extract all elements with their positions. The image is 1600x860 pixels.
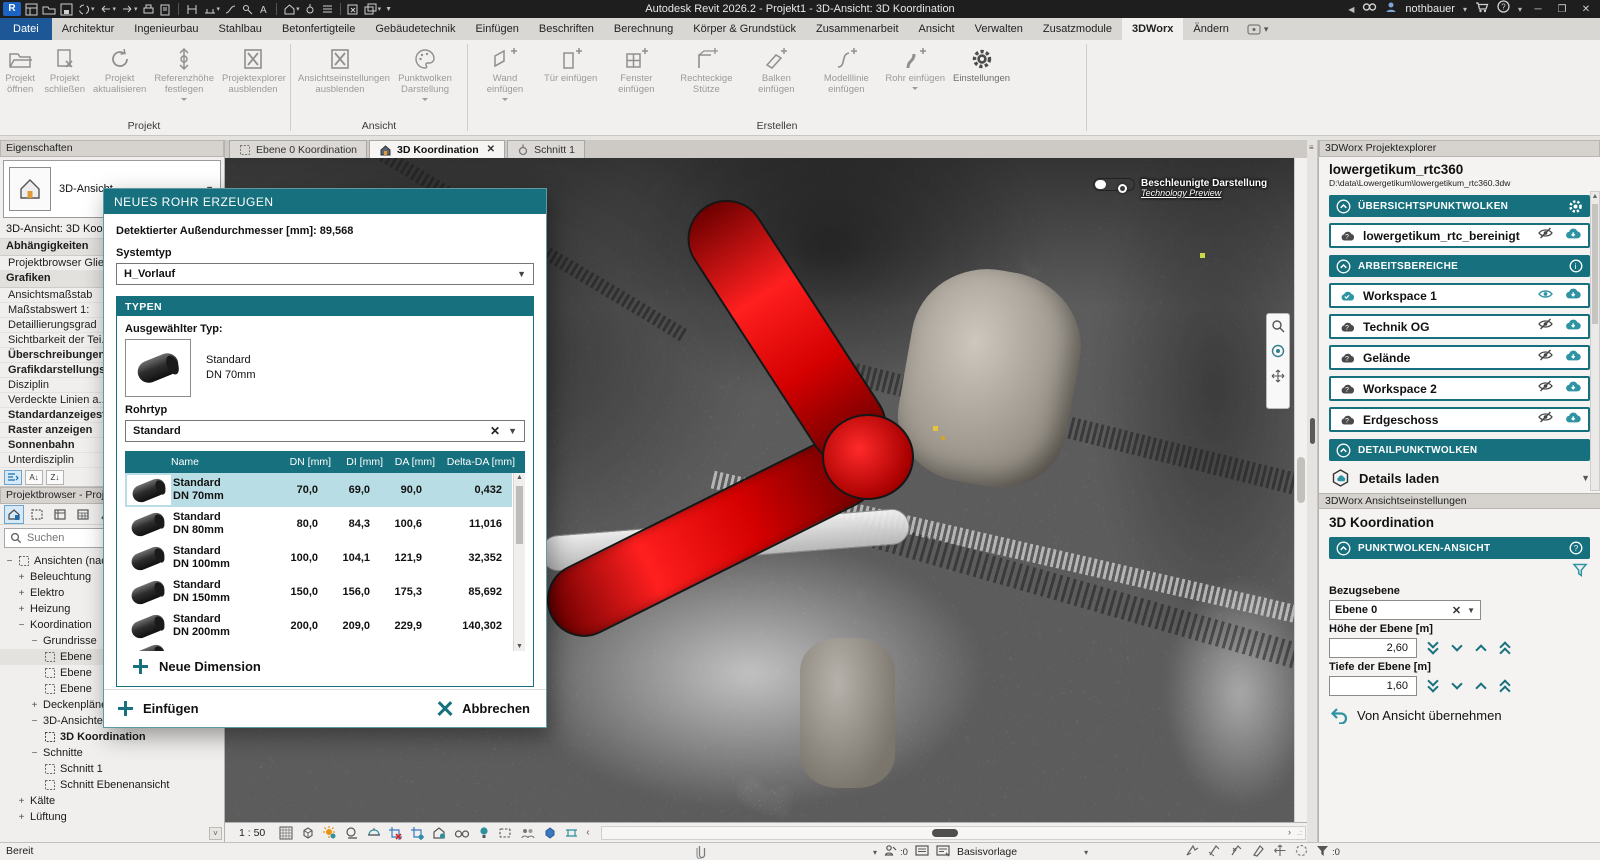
svg-text:?: ? xyxy=(1345,356,1349,363)
scrollbar-thumb[interactable] xyxy=(1297,457,1305,503)
rohrtyp-label: Rohrtyp xyxy=(125,404,525,416)
navigation-bar xyxy=(1266,313,1290,409)
scroll-right-icon[interactable]: › xyxy=(1288,827,1291,837)
punktwolken-darstellung-button[interactable]: Punktwolken Darstellung xyxy=(386,44,464,104)
view-settings-view-name: 3D Koordination xyxy=(1329,515,1590,530)
tab-stahlbau[interactable]: Stahlbau xyxy=(209,18,272,40)
marker-dot xyxy=(933,426,938,431)
render-icon[interactable] xyxy=(366,825,381,840)
clear-icon[interactable]: ✕ xyxy=(490,424,500,438)
section-view-icon xyxy=(517,144,529,156)
visibility-off-icon[interactable] xyxy=(1537,317,1554,336)
tiefe-label: Tiefe der Ebene [m] xyxy=(1329,661,1590,673)
undo-icon[interactable]: ▾ xyxy=(99,3,117,16)
cloud-status-icon: ? xyxy=(1338,320,1355,333)
ribbon: Projekt öffnen Projekt schließen Projekt… xyxy=(0,40,1600,136)
section-box-icon[interactable] xyxy=(432,825,447,840)
redo-icon[interactable]: ▾ xyxy=(120,3,138,16)
save-icon[interactable] xyxy=(60,3,73,16)
steering-wheel-icon[interactable] xyxy=(1271,344,1285,363)
workspace-item[interactable]: Workspace 1 xyxy=(1329,283,1590,308)
von-ansicht-uebernehmen-button[interactable]: Von Ansicht übernehmen xyxy=(1329,706,1590,724)
project-name: lowergetikum_rtc360 xyxy=(1329,162,1590,177)
print-icon[interactable] xyxy=(142,3,155,16)
gear-icon xyxy=(968,46,996,72)
table-header: Name DN [mm] DI [mm] DA [mm] Delta-DA [m… xyxy=(125,451,525,473)
tab-ingenieurbau[interactable]: Ingenieurbau xyxy=(124,18,208,40)
workspace-item[interactable]: ? Gelände xyxy=(1329,345,1590,370)
collapse-icon xyxy=(1336,541,1351,556)
open-icon[interactable] xyxy=(42,3,56,16)
pipe-plus-icon xyxy=(901,46,929,72)
accel-sublabel: Technology Preview xyxy=(1141,189,1267,199)
tree-item[interactable]: +Kälte xyxy=(0,793,224,809)
sync-icon[interactable]: ▾ xyxy=(77,3,95,16)
workspace-item[interactable]: ? Erdgeschoss xyxy=(1329,407,1590,432)
refresh-icon xyxy=(106,46,134,72)
design-option-value[interactable]: Basisvorlage xyxy=(957,846,1017,858)
reveal-hidden-icon[interactable] xyxy=(476,825,491,840)
tab-einfuegen[interactable]: Einfügen xyxy=(465,18,528,40)
shadows-icon[interactable] xyxy=(344,825,359,840)
ribbon-display-toggle-icon[interactable]: ▾ xyxy=(1239,18,1277,40)
revit-app-menu-button[interactable]: R xyxy=(3,2,21,16)
load-details-icon xyxy=(1331,469,1350,487)
visibility-off-icon[interactable] xyxy=(1537,410,1554,429)
projektexplorer-header[interactable]: 3DWorx Projektexplorer xyxy=(1319,140,1600,157)
column-plus-icon xyxy=(692,46,720,72)
modelllinie-einfuegen-button[interactable]: Modelllinie einfügen xyxy=(811,44,881,96)
detail-level-icon[interactable] xyxy=(278,825,293,840)
visibility-off-icon[interactable] xyxy=(1537,226,1554,245)
tab-zusammenarbeit[interactable]: Zusammenarbeit xyxy=(806,18,909,40)
show-crop-icon[interactable] xyxy=(410,825,425,840)
marker-dot xyxy=(941,436,945,440)
x-icon xyxy=(437,701,452,716)
canvas-horizontal-scrollbar[interactable]: › .: xyxy=(601,826,1306,840)
reference-height-icon xyxy=(170,46,198,72)
info-icon[interactable]: i xyxy=(1569,259,1583,273)
section-detailpunktwolken[interactable]: DETAILPUNKTWOLKEN xyxy=(1329,439,1590,461)
projekt-aktualisieren-button[interactable]: Projekt aktualisieren xyxy=(89,44,150,96)
expand-controls-icon[interactable]: ‹ xyxy=(586,827,589,838)
view-type-thumbnail xyxy=(9,167,51,211)
cloud-status-icon: ? xyxy=(1338,413,1355,426)
typen-section-header: TYPEN xyxy=(117,297,533,316)
dashed-circle-icon[interactable] xyxy=(1295,844,1308,860)
einfuegen-button[interactable]: Einfügen xyxy=(118,701,199,716)
view-tab-3d-koordination[interactable]: 3D Koordination ✕ xyxy=(369,140,505,158)
view-control-bar: 1 : 50 ‹ xyxy=(225,822,1307,842)
filter-count: :0 xyxy=(1332,847,1340,858)
tab-ansicht[interactable]: Ansicht xyxy=(909,18,965,40)
close-button[interactable]: ✕ xyxy=(1578,4,1594,15)
user-caret-icon[interactable]: ▾ xyxy=(1463,5,1467,14)
revit-window: R ▾ ▾ ▾ ▾ A ▾ ▾ ▼ Autodesk Revit 2026.2 xyxy=(0,0,1600,860)
rohr-einfuegen-button[interactable]: Rohr einfügen xyxy=(881,44,949,93)
status-bar: Bereit ▾ :0 Basisvorlage ▾ :0 xyxy=(0,842,1600,860)
svg-text:?: ? xyxy=(1501,3,1506,12)
restore-button[interactable]: ❐ xyxy=(1554,4,1570,15)
neue-dimension-button[interactable]: Neue Dimension xyxy=(125,651,525,682)
browser-views-icon[interactable] xyxy=(28,506,46,523)
accelerated-graphics-toggle[interactable] xyxy=(1093,178,1135,191)
table-row[interactable]: StandardDN 150mm 150,0 156,0 175,3 85,69… xyxy=(125,575,512,609)
worksets-icon[interactable] xyxy=(915,844,929,860)
design-options-icon[interactable] xyxy=(936,844,950,860)
cloud-status-icon: ? xyxy=(1338,229,1355,242)
select-faces-icon[interactable] xyxy=(1251,844,1265,860)
tree-item[interactable]: Schnitt Ebenenansicht xyxy=(0,777,224,793)
up-icon[interactable] xyxy=(1473,677,1489,695)
beam-plus-icon xyxy=(762,46,790,72)
cloud-download-icon[interactable] xyxy=(1563,379,1581,398)
collapse-search-icon[interactable]: ◀ xyxy=(1348,5,1354,14)
chevron-down-icon[interactable]: ▼ xyxy=(508,426,517,436)
double-down-icon[interactable] xyxy=(1425,677,1441,695)
constraints-icon[interactable] xyxy=(564,825,579,840)
editable-only-icon[interactable] xyxy=(884,844,897,860)
hide-view-settings-icon xyxy=(326,46,354,72)
tree-item[interactable]: +Lüftung xyxy=(0,809,224,825)
tree-item[interactable]: Schnitt 1 xyxy=(0,761,224,777)
referenzhoehe-festlegen-button[interactable]: Referenzhöhe festlegen xyxy=(150,44,218,104)
double-down-icon[interactable] xyxy=(1425,639,1441,657)
svg-text:?: ? xyxy=(1345,387,1349,394)
tab-zusatzmodule[interactable]: Zusatzmodule xyxy=(1033,18,1122,40)
scrollbar-thumb[interactable] xyxy=(932,829,958,837)
visual-style-icon[interactable] xyxy=(300,825,315,840)
background-processes-icon[interactable] xyxy=(693,844,706,860)
minimize-button[interactable]: ─ xyxy=(1530,4,1546,15)
selection-toggles: :0 xyxy=(1185,844,1340,860)
status-text: Bereit xyxy=(6,845,33,857)
section-icon[interactable] xyxy=(304,3,317,16)
browser-home-icon[interactable] xyxy=(5,506,23,523)
double-up-icon[interactable] xyxy=(1497,639,1513,657)
tab-beschriften[interactable]: Beschriften xyxy=(529,18,604,40)
cloud-status-icon: ? xyxy=(1338,382,1355,395)
group-label-ansicht: Ansicht xyxy=(293,118,465,135)
red-pipe-elbow[interactable] xyxy=(822,414,914,500)
panel-divider[interactable]: ≡ xyxy=(1307,140,1318,842)
crop-view-icon[interactable] xyxy=(388,825,403,840)
model-line-plus-icon xyxy=(832,46,860,72)
text-icon[interactable]: A xyxy=(258,3,270,15)
sort-ascending-button[interactable]: A↓ xyxy=(25,470,43,485)
bezugsebene-label: Bezugsebene xyxy=(1329,585,1590,597)
hoehe-spinner xyxy=(1329,638,1590,658)
hoehe-input[interactable] xyxy=(1329,638,1417,658)
select-pinned-icon[interactable] xyxy=(1229,844,1243,860)
ansichtseinstellungen-header[interactable]: 3DWorx Ansichtseinstellungen xyxy=(1319,493,1600,509)
cloud-download-icon[interactable] xyxy=(1563,317,1581,336)
balken-einfuegen-button[interactable]: Balken einfügen xyxy=(741,44,811,96)
switch-windows-icon[interactable]: ▾ xyxy=(364,3,382,16)
tab-betonfertigteile[interactable]: Betonfertigteile xyxy=(272,18,365,40)
scroll-up-icon: ▲ xyxy=(1591,193,1599,200)
ribbon-separator xyxy=(467,44,468,131)
close-view-icon[interactable]: ✕ xyxy=(487,144,495,155)
svg-text:?: ? xyxy=(1345,325,1349,332)
visibility-on-icon[interactable] xyxy=(1537,287,1554,305)
3dworx-panel: 3DWorx Projektexplorer lowergetikum_rtc3… xyxy=(1318,140,1600,842)
dialog-title[interactable]: NEUES ROHR ERZEUGEN xyxy=(104,189,546,214)
zoom-icon[interactable] xyxy=(1271,319,1285,338)
tree-scroll-down-button[interactable]: ˅ xyxy=(209,827,222,840)
gear-icon[interactable] xyxy=(1568,199,1583,214)
ribbon-tab-bar: Datei Architektur Ingenieurbau Stahlbau … xyxy=(0,18,1600,40)
projekt-schliessen-button[interactable]: Projekt schließen xyxy=(40,44,89,96)
cloud-download-icon[interactable] xyxy=(1563,348,1581,367)
worksharing-display-icon[interactable] xyxy=(520,825,535,840)
tab-verwalten[interactable]: Verwalten xyxy=(965,18,1033,40)
tiefe-spinner xyxy=(1329,676,1590,696)
filter-icon[interactable] xyxy=(1316,845,1329,860)
hide-panel-icon xyxy=(239,46,267,72)
svg-text:?: ? xyxy=(1345,418,1349,425)
scroll-down-icon: ▼ xyxy=(514,643,525,650)
help-circle-icon[interactable]: ? xyxy=(1569,541,1583,555)
detected-diameter: Detektierter Außendurchmesser [mm]: 89,5… xyxy=(116,225,534,237)
chevron-down-icon[interactable]: ▼ xyxy=(517,269,526,279)
section-uebersichtspunktwolken[interactable]: ÜBERSICHTSPUNKTWOLKEN xyxy=(1329,195,1590,217)
select-underlay-icon[interactable] xyxy=(1207,844,1221,860)
wall-plus-icon xyxy=(491,46,519,72)
tab-3dworx[interactable]: 3DWorx xyxy=(1122,18,1183,40)
cloud-download-icon[interactable] xyxy=(1563,410,1581,429)
house-3d-icon xyxy=(379,144,392,156)
sort-descending-button[interactable]: Z↓ xyxy=(46,470,64,485)
neues-rohr-dialog: NEUES ROHR ERZEUGEN Detektierter Außendu… xyxy=(103,188,547,728)
collapse-icon xyxy=(1336,259,1351,274)
section-arbeitsbereiche[interactable]: ARBEITSBEREICHE i xyxy=(1329,255,1590,277)
cloud-synced-icon xyxy=(1338,289,1355,302)
search-icon xyxy=(10,532,22,544)
qat-overflow-icon[interactable]: ▼ xyxy=(385,6,392,13)
undo-arrow-icon xyxy=(1329,706,1349,724)
pan-icon[interactable] xyxy=(1271,369,1285,388)
palette-icon xyxy=(411,46,439,72)
title-bar: R ▾ ▾ ▾ ▾ A ▾ ▾ ▼ Autodesk Revit 2026.2 xyxy=(0,0,1600,18)
scrollbar-thumb xyxy=(516,486,523,544)
pipe-type-table: Name DN [mm] DI [mm] DA [mm] Delta-DA [m… xyxy=(125,451,525,682)
table-row[interactable]: StandardDN 80mm 80,0 84,3 100,6 11,016 xyxy=(125,507,512,541)
svg-text:A: A xyxy=(260,5,267,15)
close-hidden-windows-icon[interactable] xyxy=(347,3,360,16)
scroll-up-icon: ▲ xyxy=(514,474,525,481)
projektexplorer-ausblenden-button[interactable]: Projektexplorer ausblenden xyxy=(218,44,288,96)
chevron-down-icon[interactable]: ▼ xyxy=(1581,473,1590,483)
systemtyp-label: Systemtyp xyxy=(116,247,534,259)
section-punktwolken-ansicht[interactable]: PUNKTWOLKEN-ANSICHT ? xyxy=(1329,537,1590,559)
project-path: D:\data\Lowergetikum\lowergetikum_rtc360… xyxy=(1329,178,1590,188)
pointcloud-item[interactable]: ? lowergetikum_rtc_bereinigt xyxy=(1329,223,1590,248)
ansichtseinstellungen-ausblenden-button[interactable]: Ansichtseinstellungen ausblenden xyxy=(294,44,386,96)
user-icon[interactable] xyxy=(1385,0,1397,18)
thin-lines-icon[interactable] xyxy=(321,3,334,16)
plus-icon xyxy=(118,701,133,716)
einstellungen-button[interactable]: Einstellungen xyxy=(949,44,1014,85)
chevron-down-icon[interactable]: ▾ xyxy=(873,848,877,857)
divider-menu-icon[interactable]: ≡ xyxy=(1309,143,1314,152)
temporary-view-icon[interactable] xyxy=(498,825,513,840)
aligned-dimension-icon[interactable]: ▾ xyxy=(203,3,221,16)
worksets-bar: ▾ :0 Basisvorlage ▾ xyxy=(873,844,1088,860)
cursor xyxy=(1118,184,1127,193)
cloud-download-icon[interactable] xyxy=(1563,226,1581,245)
svg-text:?: ? xyxy=(1345,234,1349,241)
resize-grip[interactable]: .: xyxy=(1297,830,1303,837)
hoehe-label: Höhe der Ebene [m] xyxy=(1329,623,1590,635)
model-line-icon[interactable] xyxy=(224,3,237,16)
table-row-partial[interactable] xyxy=(125,643,512,651)
print-setup-icon[interactable] xyxy=(159,3,172,16)
workspace-item[interactable]: ? Technik OG xyxy=(1329,314,1590,339)
table-scrollbar[interactable]: ▲ ▼ xyxy=(513,473,525,651)
tag-icon[interactable] xyxy=(241,3,254,16)
cloud-status-icon: ? xyxy=(1338,351,1355,364)
collapse-icon xyxy=(1336,199,1351,214)
marker-dot xyxy=(1200,253,1205,258)
title-bar-right: ◀ nothbauer ▾ ? ▾ ─ ❐ ✕ xyxy=(1348,0,1600,18)
details-laden-button[interactable]: Details laden ▼ xyxy=(1331,469,1590,487)
default-3d-view-icon[interactable]: ▾ xyxy=(283,3,300,16)
view-tab-ebene0[interactable]: Ebene 0 Koordination xyxy=(229,140,367,158)
chevron-down-icon[interactable]: ▾ xyxy=(1084,848,1088,857)
down-icon[interactable] xyxy=(1449,677,1465,695)
chevron-down-icon xyxy=(502,98,508,104)
rechteckige-stuetze-button[interactable]: Rechteckige Stütze xyxy=(671,44,741,96)
help-caret-icon[interactable]: ▾ xyxy=(1518,5,1522,14)
tree-item[interactable]: −Schnitte xyxy=(0,745,224,761)
search-icon[interactable] xyxy=(1362,0,1377,18)
selected-type-thumbnail xyxy=(125,339,191,397)
sun-path-icon[interactable] xyxy=(322,825,337,840)
table-row[interactable]: StandardDN 70mm 70,0 69,0 90,0 0,432 xyxy=(125,473,512,507)
wand-einfuegen-button[interactable]: Wand einfügen xyxy=(470,44,540,104)
table-row[interactable]: StandardDN 100mm 100,0 104,1 121,9 32,35… xyxy=(125,541,512,575)
fenster-einfuegen-button[interactable]: Fenster einfügen xyxy=(601,44,671,96)
tiefe-input[interactable] xyxy=(1329,676,1417,696)
svg-text:?: ? xyxy=(1574,544,1579,553)
collapse-icon xyxy=(1336,443,1351,458)
tab-koerper-grundstueck[interactable]: Körper & Grundstück xyxy=(683,18,806,40)
editable-count: :0 xyxy=(900,847,908,858)
tab-datei[interactable]: Datei xyxy=(0,18,52,40)
view-tab-bar: Ebene 0 Koordination 3D Koordination ✕ S… xyxy=(225,140,1307,158)
views-icon[interactable] xyxy=(25,3,38,16)
ribbon-separator xyxy=(290,44,291,131)
tab-gebaeudetechnik[interactable]: Gebäudetechnik xyxy=(365,18,465,40)
svg-text:i: i xyxy=(1575,261,1577,271)
cloud-download-icon[interactable] xyxy=(1563,286,1581,305)
visibility-off-icon[interactable] xyxy=(1537,379,1554,398)
equipment-cylinder xyxy=(800,638,895,788)
help-icon[interactable]: ? xyxy=(1497,0,1510,18)
up-icon[interactable] xyxy=(1473,639,1489,657)
plan-view-icon xyxy=(239,144,251,156)
double-up-icon[interactable] xyxy=(1497,677,1513,695)
selected-type-label: Ausgewählter Typ: xyxy=(125,323,525,335)
view-tab-schnitt1[interactable]: Schnitt 1 xyxy=(507,140,585,158)
bezugsebene-combobox[interactable]: Ebene 0 ✕ ▼ xyxy=(1329,600,1481,620)
folder-open-icon xyxy=(6,46,34,72)
drag-on-selection-icon[interactable] xyxy=(1273,844,1287,860)
table-row[interactable]: StandardDN 200mm 200,0 209,0 229,9 140,3… xyxy=(125,609,512,643)
browser-schedules-icon[interactable] xyxy=(51,506,69,523)
window-plus-icon xyxy=(622,46,650,72)
workspace-item[interactable]: ? Workspace 2 xyxy=(1329,376,1590,401)
selected-type-name: Standard xyxy=(206,353,256,368)
tree-item-active-view[interactable]: 3D Koordination xyxy=(0,729,224,745)
properties-header[interactable]: Eigenschaften xyxy=(0,140,224,157)
hidden-lines-glasses-icon[interactable] xyxy=(454,825,469,840)
filter-icon[interactable] xyxy=(1572,563,1588,582)
tab-aendern[interactable]: Ändern xyxy=(1183,18,1238,40)
displacement-icon[interactable] xyxy=(542,825,557,840)
rohrtyp-combobox[interactable]: Standard ✕ ▼ xyxy=(125,420,525,442)
systemtyp-combobox[interactable]: H_Vorlauf ▼ xyxy=(116,263,534,285)
chevron-down-icon xyxy=(181,98,187,104)
tuer-einfuegen-button[interactable]: Tür einfügen xyxy=(540,44,601,85)
down-icon[interactable] xyxy=(1449,639,1465,657)
chevron-down-icon xyxy=(422,98,428,104)
browser-sheets-icon[interactable] xyxy=(74,506,92,523)
projekt-oeffnen-button[interactable]: Projekt öffnen xyxy=(0,44,40,96)
tab-architektur[interactable]: Architektur xyxy=(52,18,125,40)
door-plus-icon xyxy=(557,46,585,72)
measure-icon[interactable] xyxy=(185,3,199,16)
group-label-projekt: Projekt xyxy=(0,118,288,135)
divider-grip[interactable] xyxy=(1310,418,1315,444)
scrollbar-thumb xyxy=(1592,204,1598,324)
abbrechen-button[interactable]: Abbrechen xyxy=(437,701,530,716)
quick-access-toolbar: ▾ ▾ ▾ ▾ A ▾ ▾ ▼ xyxy=(25,3,392,16)
selected-type-size: DN 70mm xyxy=(206,368,256,383)
ribbon-separator xyxy=(1086,44,1087,131)
user-name[interactable]: nothbauer xyxy=(1405,3,1455,15)
group-label-erstellen: Erstellen xyxy=(470,118,1084,135)
clear-icon[interactable]: ✕ xyxy=(1452,604,1461,617)
panel-scrollbar[interactable]: ▲ xyxy=(1590,191,1600,491)
tab-berechnung[interactable]: Berechnung xyxy=(604,18,683,40)
select-links-icon[interactable] xyxy=(1185,844,1199,860)
visibility-off-icon[interactable] xyxy=(1537,348,1554,367)
chevron-down-icon[interactable]: ▼ xyxy=(1467,606,1475,615)
sort-default-button[interactable] xyxy=(4,470,22,485)
close-project-icon xyxy=(51,46,79,72)
store-cart-icon[interactable] xyxy=(1475,0,1489,18)
plus-icon xyxy=(133,659,148,674)
view-scale[interactable]: 1 : 50 xyxy=(239,827,265,839)
chevron-down-icon xyxy=(912,87,918,93)
canvas-vertical-scrollbar[interactable] xyxy=(1294,158,1307,822)
